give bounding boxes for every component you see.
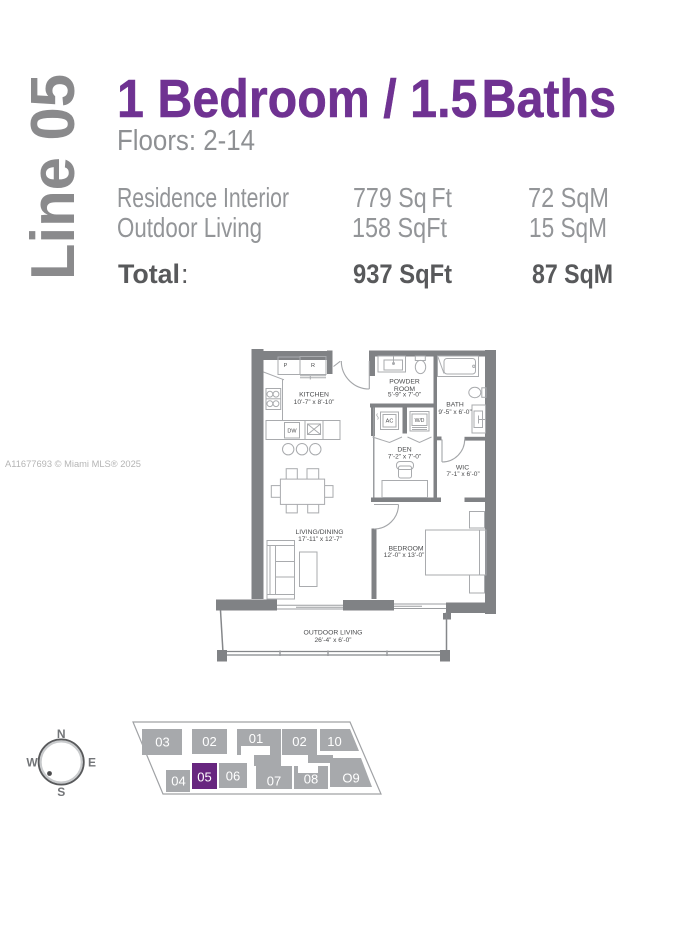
svg-text:1 Bedroom / 1.5 Baths: 1 Bedroom / 1.5 Baths <box>117 69 616 129</box>
svg-text:Total: Total <box>118 259 180 289</box>
svg-text:04: 04 <box>171 774 185 789</box>
svg-text:7’-1” x 6’-0”: 7’-1” x 6’-0” <box>446 471 479 478</box>
svg-text:Floors: 2-14: Floors: 2-14 <box>117 125 255 157</box>
svg-text:KITCHEN: KITCHEN <box>299 391 329 398</box>
svg-text:02: 02 <box>202 734 216 749</box>
svg-text:15 SqM: 15 SqM <box>529 212 607 243</box>
svg-text:Outdoor Living: Outdoor Living <box>117 212 262 243</box>
svg-text:POWDER: POWDER <box>389 379 420 386</box>
svg-text:W: W <box>26 756 38 770</box>
svg-text:P: P <box>284 363 288 369</box>
svg-text:17’-11” x 12’-7”: 17’-11” x 12’-7” <box>298 536 342 543</box>
svg-text:05: 05 <box>197 770 211 785</box>
svg-text:AC: AC <box>386 419 394 425</box>
svg-text:03: 03 <box>155 735 169 750</box>
svg-text:A11677693 © Miami MLS® 2025: A11677693 © Miami MLS® 2025 <box>5 459 141 470</box>
svg-text:779 Sq Ft: 779 Sq Ft <box>353 182 452 213</box>
svg-text:O9: O9 <box>342 771 359 786</box>
svg-text:10: 10 <box>327 734 341 749</box>
svg-text:Line 05: Line 05 <box>19 74 88 280</box>
svg-text::: : <box>181 259 189 289</box>
svg-text:07: 07 <box>267 774 281 789</box>
svg-text:02: 02 <box>292 734 306 749</box>
svg-text:158 SqFt: 158 SqFt <box>352 212 447 243</box>
svg-text:72 SqM: 72 SqM <box>528 182 609 213</box>
svg-text:BATH: BATH <box>446 402 464 409</box>
svg-text:Residence Interior: Residence Interior <box>117 182 289 213</box>
svg-text:7’-2” x 7’-0”: 7’-2” x 7’-0” <box>388 454 421 461</box>
svg-text:S: S <box>57 785 65 799</box>
svg-text:W/D: W/D <box>415 418 425 424</box>
svg-text:N: N <box>57 727 66 741</box>
svg-text:OUTDOOR LIVING: OUTDOOR LIVING <box>304 630 363 637</box>
svg-text:10’-7” x 8’-10”: 10’-7” x 8’-10” <box>294 399 335 406</box>
svg-text:5’-9” x 7’-0”: 5’-9” x 7’-0” <box>388 392 421 399</box>
svg-text:08: 08 <box>304 772 318 787</box>
svg-text:DEN: DEN <box>397 447 411 454</box>
svg-text:E: E <box>88 756 96 770</box>
svg-text:DW: DW <box>287 429 297 435</box>
svg-text:26’-4” x 6’-0”: 26’-4” x 6’-0” <box>314 637 351 644</box>
svg-text:06: 06 <box>226 769 240 784</box>
svg-text:937 SqFt: 937 SqFt <box>353 259 452 289</box>
svg-text:9’-5” x 6’-0”: 9’-5” x 6’-0” <box>438 409 471 416</box>
svg-text:01: 01 <box>249 731 263 746</box>
svg-text:R: R <box>311 363 315 369</box>
svg-text:12’-0” x 13’-0”: 12’-0” x 13’-0” <box>384 552 425 559</box>
svg-text:87 SqM: 87 SqM <box>532 259 613 289</box>
